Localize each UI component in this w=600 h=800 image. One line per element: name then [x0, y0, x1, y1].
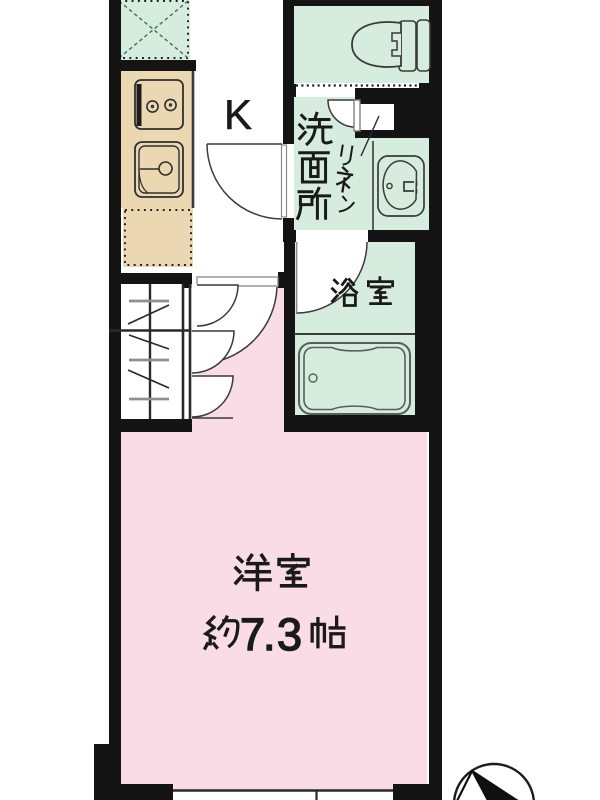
svg-text:7: 7	[240, 609, 265, 660]
svg-text:K: K	[224, 91, 252, 138]
svg-text:.: .	[263, 609, 276, 660]
svg-text:3: 3	[277, 609, 302, 660]
